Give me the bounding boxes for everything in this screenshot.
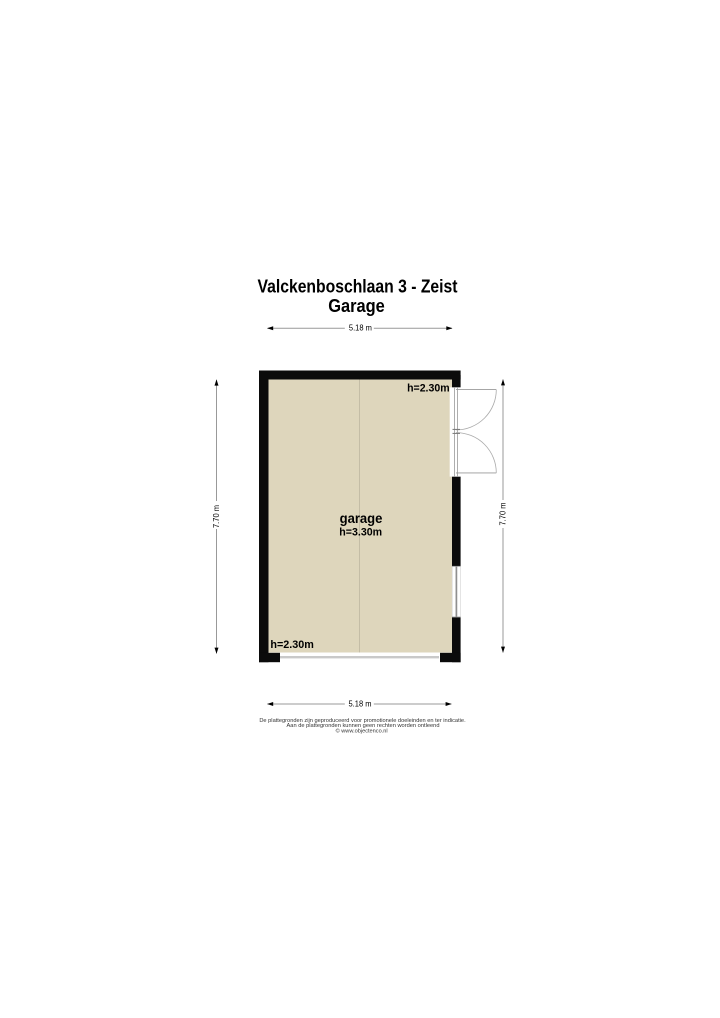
svg-text:h=3.30m: h=3.30m bbox=[339, 526, 382, 538]
svg-text:7.70 m: 7.70 m bbox=[211, 505, 221, 528]
svg-text:garage: garage bbox=[340, 510, 383, 526]
svg-text:Valckenboschlaan 3 - Zeist: Valckenboschlaan 3 - Zeist bbox=[258, 275, 458, 296]
svg-text:© www.objectenco.nl: © www.objectenco.nl bbox=[336, 728, 388, 735]
svg-text:5.18 m: 5.18 m bbox=[349, 699, 372, 709]
svg-text:Garage: Garage bbox=[328, 295, 385, 316]
svg-text:5.18 m: 5.18 m bbox=[349, 323, 372, 333]
svg-text:7.70 m: 7.70 m bbox=[498, 503, 508, 526]
svg-text:h=2.30m: h=2.30m bbox=[270, 639, 314, 651]
svg-text:h=2.30m: h=2.30m bbox=[407, 382, 450, 394]
